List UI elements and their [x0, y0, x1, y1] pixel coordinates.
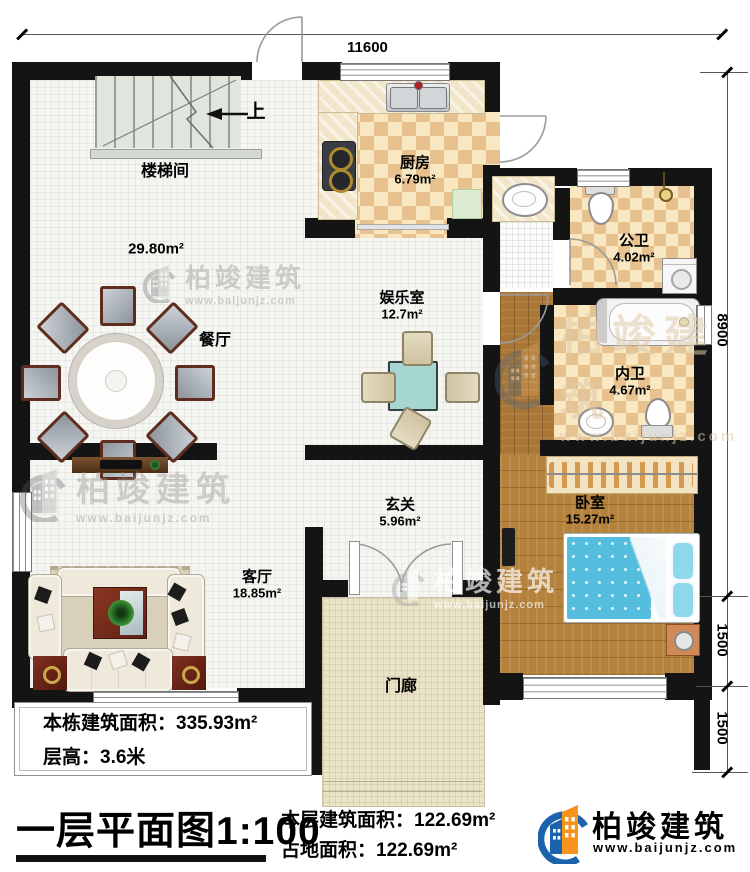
stairwell-name: 楼梯间 — [141, 163, 189, 181]
kitchen-threshold — [357, 224, 449, 230]
stairs-handrail — [90, 149, 262, 159]
nightstand — [666, 624, 700, 656]
kitchen-pad — [452, 189, 482, 219]
dining-chair — [175, 365, 215, 401]
dim-right-total: 8900 — [714, 313, 731, 346]
floor-area: 本层建筑面积：122.69m² — [281, 806, 495, 836]
dim-ext — [696, 686, 748, 687]
dim-line-right — [727, 73, 728, 773]
room-label-foyer: 玄关 5.96m² — [379, 497, 420, 528]
wall — [553, 188, 570, 240]
bed-sheet-fold — [630, 537, 666, 619]
dim-right-seg2: 1500 — [714, 711, 731, 744]
brand-logo-icon — [538, 802, 590, 864]
dim-right-seg1: 1500 — [714, 623, 731, 656]
brand-url: www.baijunjz.com — [593, 840, 737, 855]
floor-plan-canvas: 楼梯间 上 29.80m² 厨房 6.79m² 公卫 4.02m² 内卫 4.6… — [0, 0, 750, 872]
bathtub-icon — [596, 298, 700, 346]
tv-icon — [100, 460, 142, 469]
kitchen-sink — [386, 83, 450, 112]
wall — [305, 218, 355, 238]
room-label-entertainment: 娱乐室 12.7m² — [379, 290, 424, 321]
floor-stats: 本层建筑面积：122.69m² 占地面积：122.69m² — [281, 806, 495, 866]
game-chair — [361, 372, 396, 403]
inner-toilet-tank-icon — [641, 425, 673, 438]
stove-icon — [322, 141, 356, 191]
plant-icon — [150, 460, 160, 470]
room-label-dining: 餐厅 — [199, 332, 231, 350]
wall — [483, 673, 523, 700]
floor-height: 层高：3.6米 — [43, 745, 311, 771]
tv-cabinet — [72, 457, 168, 473]
plant-icon — [108, 600, 134, 626]
room-label-inner-bath: 内卫 4.67m² — [609, 366, 650, 397]
wall — [12, 62, 30, 492]
room-label-public-bath: 公卫 4.02m² — [613, 233, 654, 264]
public-bath-window — [577, 169, 630, 187]
living-west-window — [12, 492, 32, 572]
inner-bath-basin-icon — [578, 407, 614, 437]
bedroom-south-window — [523, 677, 667, 699]
pillow-icon — [671, 581, 695, 619]
wall — [694, 700, 710, 770]
wall — [483, 445, 500, 597]
washing-machine-icon — [662, 258, 697, 294]
dim-line-top — [22, 34, 722, 35]
up-label: 上 — [246, 101, 265, 122]
room-label-living: 客厅 18.85m² — [233, 569, 281, 600]
room-label-kitchen: 厨房 6.79m² — [394, 155, 435, 186]
dining-chair — [100, 286, 136, 326]
stair-direction-label: 上 — [246, 101, 265, 122]
building-info-box: 本栋建筑面积：335.93m² 层高：3.6米 — [14, 702, 312, 776]
game-chair — [402, 331, 433, 366]
room-label-stairwell: 楼梯间 — [141, 163, 189, 181]
wall — [302, 62, 342, 80]
footprint-area: 占地面积：122.69m² — [281, 836, 495, 866]
game-chair — [445, 372, 480, 403]
total-building-area: 本栋建筑面积：335.93m² — [43, 711, 311, 737]
title-underline — [16, 855, 266, 862]
wardrobe — [546, 456, 698, 494]
foyer-door-leaf — [452, 541, 463, 595]
wall — [305, 580, 348, 597]
inner-bath-window — [696, 305, 712, 345]
dim-ext — [692, 772, 748, 773]
lamp-icon — [674, 631, 694, 651]
hall-area-label: 29.80m² — [128, 242, 184, 259]
pillow-icon — [671, 541, 695, 581]
room-label-bedroom: 卧室 15.27m² — [566, 495, 614, 526]
dim-ext — [696, 596, 748, 597]
faucet-icon — [414, 81, 423, 90]
end-table — [172, 656, 206, 690]
wall — [483, 62, 500, 112]
bed — [563, 533, 700, 623]
vanity-basin-icon — [502, 183, 548, 217]
foyer-door-leaf — [349, 541, 360, 595]
hall-area: 29.80m² — [128, 241, 184, 258]
wall — [540, 305, 554, 405]
dim-top-value: 11600 — [347, 39, 388, 56]
page-title: 一层平面图1:100 — [16, 800, 321, 856]
hanging-fixture-icon — [659, 188, 673, 202]
wall — [483, 345, 500, 445]
dining-table — [68, 333, 164, 429]
porch-step-line — [323, 781, 482, 782]
dining-chair — [21, 365, 61, 401]
room-label-porch: 门廊 — [385, 678, 417, 696]
bedroom-tv-icon — [502, 528, 515, 566]
wall — [483, 238, 500, 292]
kitchen-window — [340, 63, 450, 81]
coffee-table — [93, 587, 147, 639]
end-table — [33, 656, 67, 690]
porch-step-line — [323, 791, 482, 792]
wall — [305, 445, 495, 460]
porch-floor — [322, 597, 485, 807]
pillow-icon — [37, 614, 56, 633]
wall — [540, 440, 712, 456]
stairs — [95, 76, 241, 148]
